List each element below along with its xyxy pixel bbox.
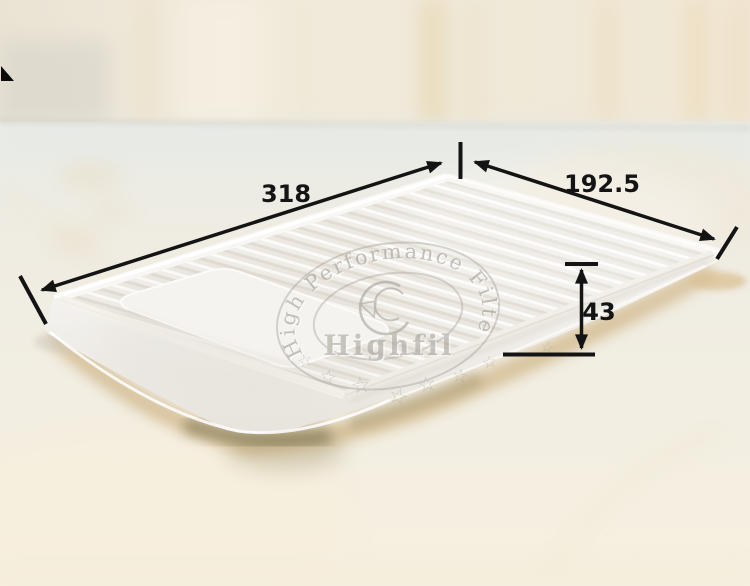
photo-canvas: High Performance Filter High Performance…: [0, 0, 750, 586]
width-label: 192.5: [564, 170, 640, 198]
marble-wall: [0, 0, 750, 126]
length-label: 318: [261, 180, 311, 208]
star-icon: ☆: [349, 372, 372, 400]
height-label: 43: [582, 298, 615, 326]
product-photo: High Performance Filter High Performance…: [0, 0, 750, 586]
watermark-brand: Highfil: [323, 329, 454, 362]
star-icon: ☆: [450, 364, 470, 388]
